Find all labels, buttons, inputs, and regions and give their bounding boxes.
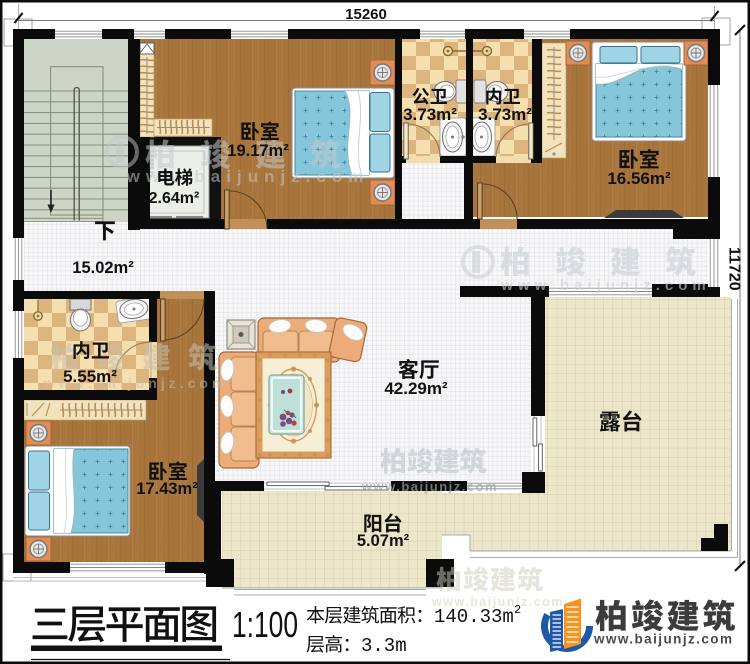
svg-text:www.baijunjz.com: www.baijunjz.com: [500, 277, 710, 294]
svg-text:2: 2: [514, 603, 521, 617]
svg-text:140.33m: 140.33m: [434, 606, 514, 628]
svg-text:5.55m²: 5.55m²: [63, 367, 117, 386]
svg-text:19.17m²: 19.17m²: [227, 142, 289, 160]
svg-text:1:100: 1:100: [232, 604, 298, 645]
svg-text:15260: 15260: [345, 6, 387, 23]
svg-text:15.02m²: 15.02m²: [72, 259, 134, 277]
svg-text:www.baijunjz.com: www.baijunjz.com: [361, 479, 498, 494]
svg-text:3.73m²: 3.73m²: [478, 105, 532, 124]
svg-text:42.29m²: 42.29m²: [384, 379, 448, 398]
svg-text:5.07m²: 5.07m²: [357, 532, 410, 550]
svg-text:2.64m²: 2.64m²: [149, 190, 200, 207]
svg-text:3.73m²: 3.73m²: [403, 105, 457, 124]
svg-text:3.3m: 3.3m: [361, 635, 407, 657]
svg-text:17.43m²: 17.43m²: [136, 480, 198, 498]
svg-text:11720: 11720: [726, 247, 743, 291]
svg-text:16.56m²: 16.56m²: [607, 169, 671, 188]
svg-text:www.baijunjz.com: www.baijunjz.com: [593, 632, 732, 647]
